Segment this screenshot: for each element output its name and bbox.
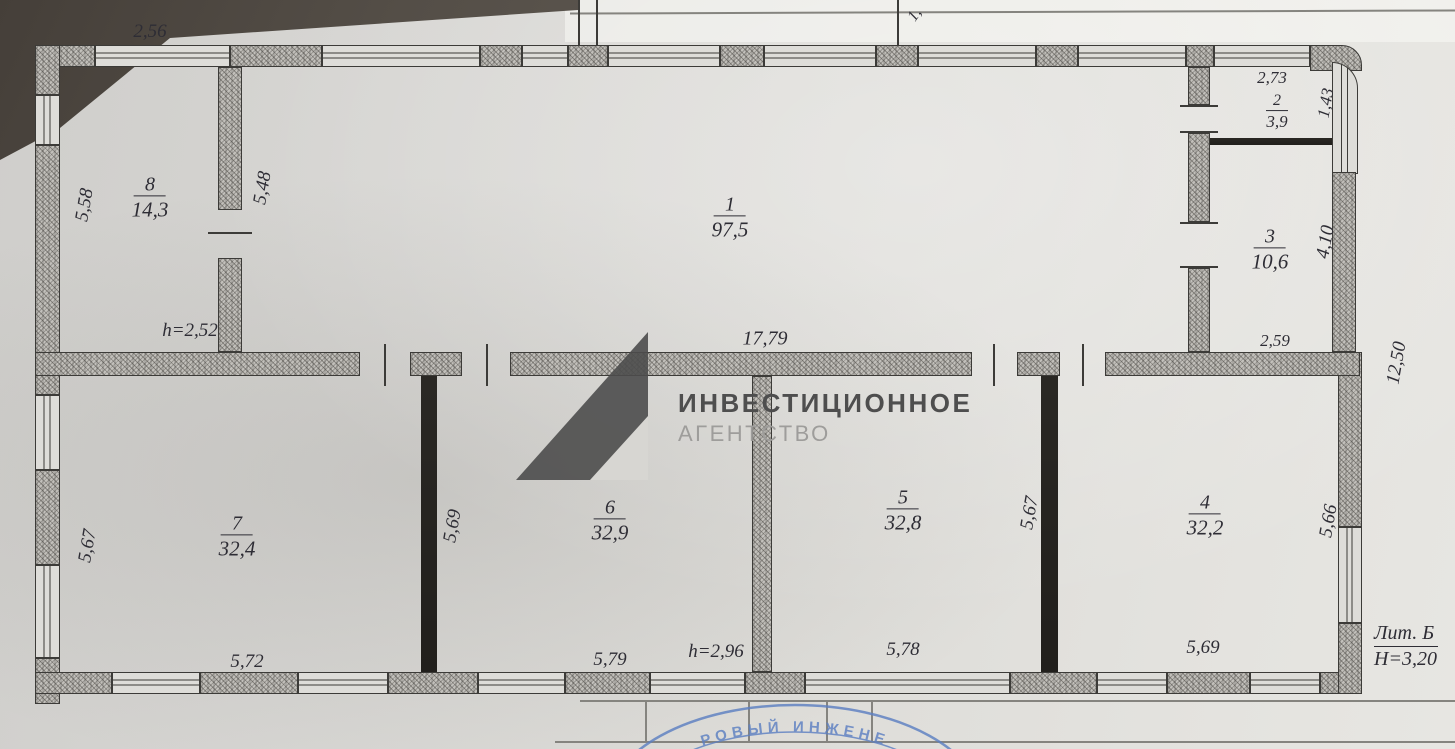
svg-text:РОВЫЙ ИНЖЕНЕ: РОВЫЙ ИНЖЕНЕ xyxy=(699,718,892,749)
floorplan-scan: 1 97,5 2 3,9 3 10,6 4 32,2 5 32,8 6 32,9… xyxy=(0,0,1455,749)
stamp-arc-text: РОВЫЙ ИНЖЕНЕ xyxy=(699,718,892,749)
blue-stamp: РОВЫЙ ИНЖЕНЕ КУЛИГА. УЛ xyxy=(0,0,1455,749)
